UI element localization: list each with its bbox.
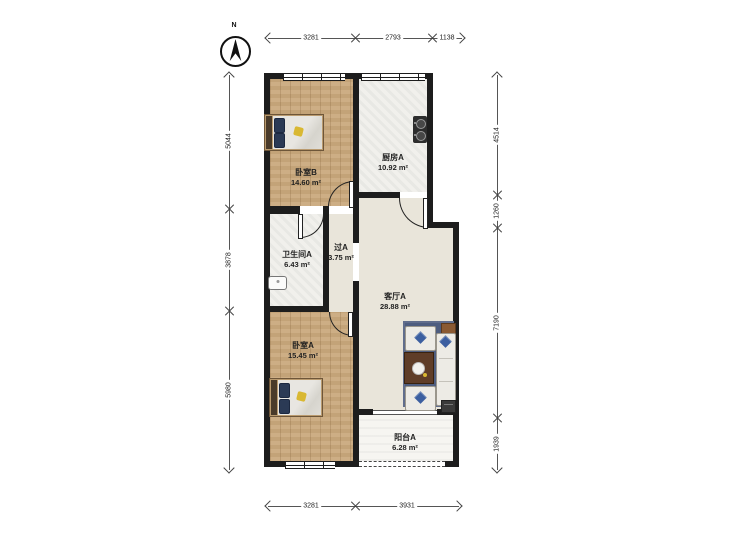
bed-pillow — [279, 399, 290, 414]
room-area: 3.75 m² — [328, 253, 354, 263]
room-name: 客厅A — [380, 291, 410, 302]
dim-tick — [492, 413, 502, 423]
bed-headboard — [271, 380, 277, 415]
room-label-balcony: 阳台A 6.28 m² — [392, 432, 418, 453]
sink-faucet — [276, 280, 279, 283]
armchair-bottom — [405, 386, 436, 411]
bed-pillow — [274, 133, 285, 148]
dim-label: 4514 — [493, 125, 502, 145]
dim-tick — [492, 223, 502, 233]
bed-pillow — [279, 383, 290, 398]
wall-bottom-corner — [445, 461, 459, 467]
wall-kitchen-bottom — [353, 192, 400, 198]
window-mullion — [285, 465, 335, 466]
dim-label: 3878 — [225, 250, 234, 270]
dim-label: 5980 — [225, 380, 234, 400]
room-label-hallway: 过A 3.75 m² — [328, 242, 354, 263]
north-compass: N — [214, 22, 254, 70]
dim-tick — [224, 204, 234, 214]
bed-pillow — [274, 118, 285, 133]
dim-tick — [427, 33, 437, 43]
room-label-living: 客厅A 28.88 m² — [380, 291, 410, 312]
dim-label: 1260 — [493, 201, 502, 221]
room-area: 15.45 m² — [288, 351, 318, 361]
dim-arrow — [264, 32, 275, 43]
room-label-bedroom-a: 卧室A 15.45 m² — [288, 340, 318, 361]
compass-circle — [220, 36, 251, 67]
stove-knob — [414, 134, 416, 136]
room-area: 14.60 m² — [291, 178, 321, 188]
room-area: 28.88 m² — [380, 302, 410, 312]
sofa-cushion-line — [439, 358, 453, 359]
wall-spine-upper — [353, 73, 359, 243]
dim-arrow — [223, 71, 234, 82]
balcony-railing — [359, 461, 445, 467]
dim-tick — [492, 190, 502, 200]
door-leaf-bedroom-b — [349, 181, 354, 208]
media-unit — [441, 400, 456, 413]
dim-arrow — [451, 500, 462, 511]
bed-headboard — [266, 116, 272, 149]
room-area: 6.43 m² — [282, 260, 312, 270]
door-leaf-bathroom — [298, 214, 303, 239]
wall-balcony-div-l — [359, 409, 373, 415]
wall-bathroom-right — [323, 214, 329, 312]
dim-label: 7190 — [493, 313, 502, 333]
stove-cooktop — [413, 116, 427, 143]
sofa-pillow — [439, 335, 452, 348]
sofa — [436, 333, 456, 406]
dim-arrow — [223, 462, 234, 473]
dimension-line-bottom — [268, 506, 459, 507]
window-mullion — [283, 77, 345, 78]
window-bedroom-b — [283, 73, 345, 81]
armchair-pillow — [414, 331, 427, 344]
floor-plan-canvas: N — [0, 0, 729, 547]
room-label-bedroom-b: 卧室B 14.60 m² — [291, 167, 321, 188]
room-name: 阳台A — [392, 432, 418, 443]
dim-arrow — [264, 500, 275, 511]
coffee-table-dot — [423, 373, 427, 377]
room-area: 10.92 m² — [378, 163, 408, 173]
dim-label: 3931 — [397, 502, 417, 511]
window-bedroom-a — [285, 461, 335, 469]
dim-label: 3281 — [301, 502, 321, 511]
room-area: 6.28 m² — [392, 443, 418, 453]
dim-tick — [350, 501, 360, 511]
room-label-bathroom: 卫生间A 6.43 m² — [282, 249, 312, 270]
armchair-top — [405, 326, 436, 351]
bathroom-sink — [268, 276, 287, 290]
dim-label: 3281 — [301, 34, 321, 43]
dim-label: 1939 — [493, 434, 502, 454]
room-name: 过A — [328, 242, 354, 253]
dim-label: 1138 — [437, 34, 456, 43]
room-name: 卧室A — [288, 340, 318, 351]
dim-tick — [350, 33, 360, 43]
wall-spine-lower — [353, 281, 359, 467]
floor-hallway — [329, 214, 353, 312]
dim-label: 2793 — [383, 34, 403, 43]
room-label-kitchen: 厨房A 10.92 m² — [378, 152, 408, 173]
armchair-pillow — [414, 391, 427, 404]
stove-burner — [416, 119, 426, 129]
door-leaf-kitchen — [423, 198, 428, 229]
wall-bedb-bottom-1 — [264, 206, 300, 214]
dim-label: 5044 — [225, 131, 234, 151]
room-name: 卧室B — [291, 167, 321, 178]
window-mullion — [361, 77, 425, 78]
window-kitchen — [361, 73, 425, 81]
sofa-cushion-line — [439, 381, 453, 382]
coffee-table — [404, 352, 434, 384]
dim-arrow — [491, 462, 502, 473]
door-leaf-bedroom-a — [348, 312, 353, 337]
stove-knob — [414, 122, 416, 124]
bed-bedroom-a — [269, 378, 323, 417]
wall-bedb-bottom-2 — [323, 206, 329, 214]
dim-arrow — [491, 71, 502, 82]
compass-needle-icon — [226, 39, 246, 63]
bed-bedroom-b — [264, 114, 324, 151]
stove-burner — [416, 131, 426, 141]
wall-bath-bottom — [264, 306, 329, 312]
room-name: 卫生间A — [282, 249, 312, 260]
dim-tick — [224, 306, 234, 316]
room-name: 厨房A — [378, 152, 408, 163]
compass-north-label: N — [231, 22, 236, 29]
